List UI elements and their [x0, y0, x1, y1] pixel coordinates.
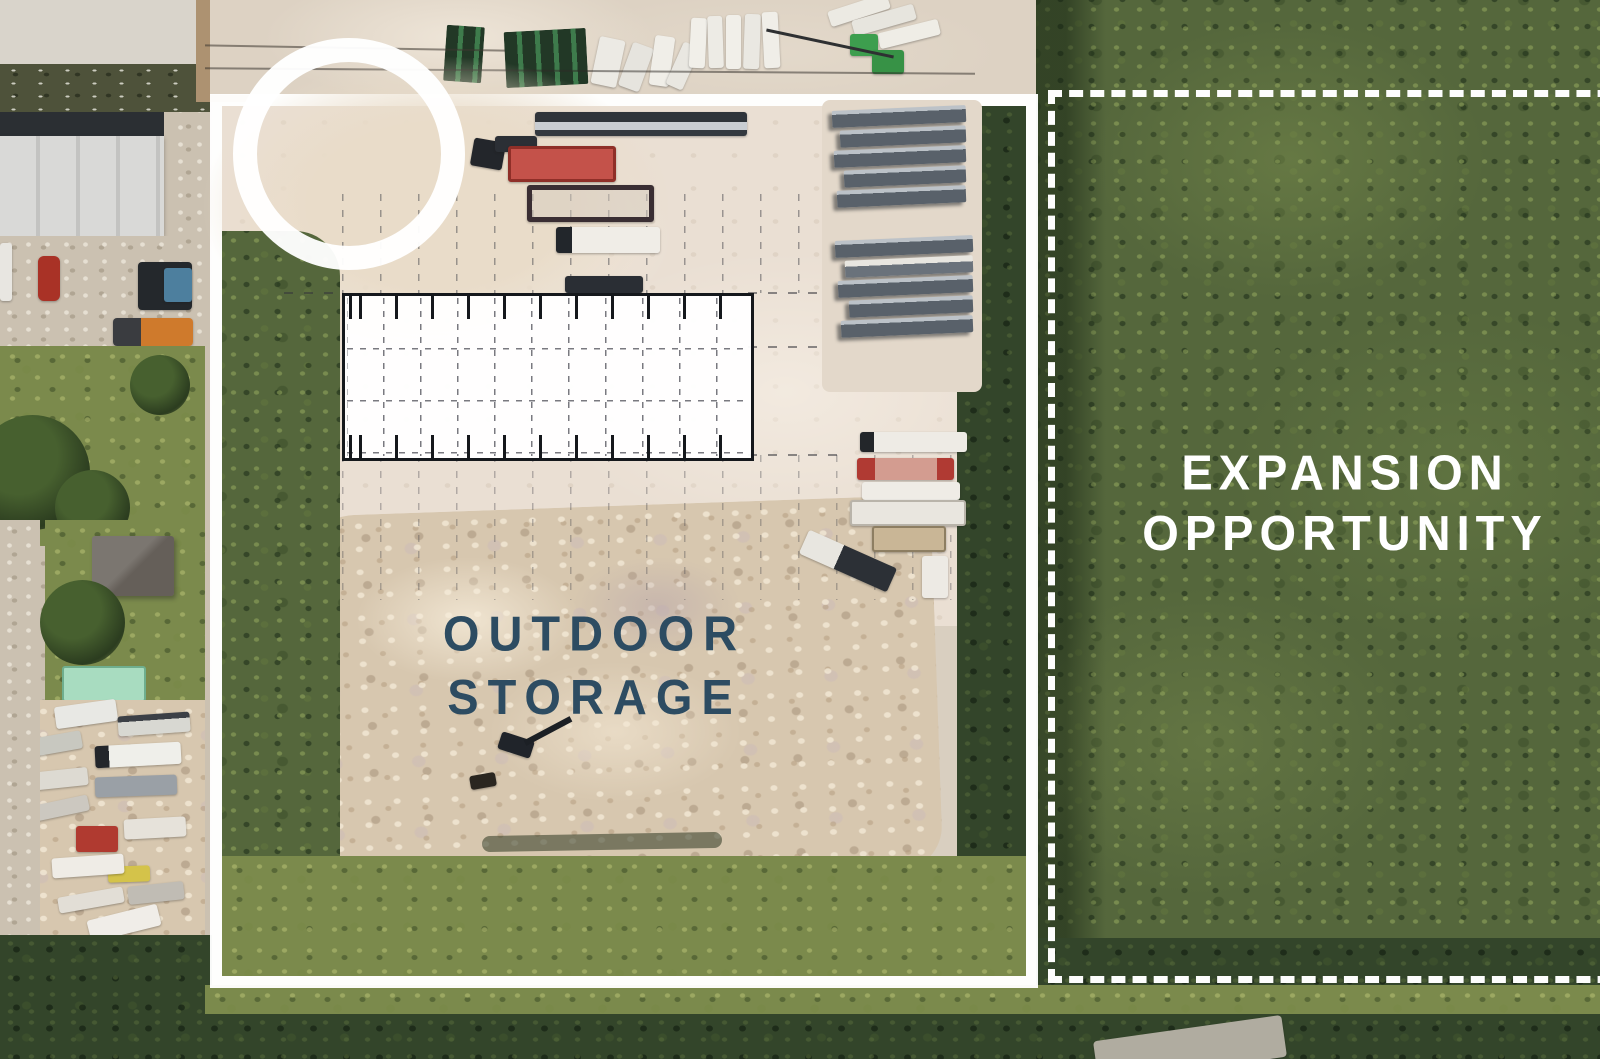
dumpster-row: [835, 235, 974, 258]
white-van: [707, 16, 724, 68]
green-buffer-bottom: [222, 856, 1026, 976]
gravel-road: [0, 520, 40, 990]
expansion-parcel-boundary: EXPANSION OPPORTUNITY: [1048, 90, 1600, 983]
expansion-opportunity-label: EXPANSION OPPORTUNITY: [1125, 443, 1565, 564]
dumpster-row: [841, 315, 974, 338]
tan-trailer: [872, 526, 946, 552]
warehouse-roof-dark-band: [0, 112, 164, 136]
brush-band: [0, 64, 210, 112]
grass-band: [205, 985, 1600, 1017]
footprint-column-ticks-top: [345, 296, 751, 319]
orange-truck: [113, 318, 193, 346]
trailer: [94, 742, 181, 768]
bottom-tree-band: [0, 1014, 1600, 1059]
flatbed-truck: [860, 432, 967, 452]
red-container: [76, 826, 118, 852]
gridline-extension: [748, 454, 848, 456]
trailer: [124, 816, 187, 839]
dumpster-row: [838, 275, 974, 298]
white-trailer: [862, 482, 960, 500]
white-van: [726, 15, 741, 69]
small-truck: [565, 276, 643, 293]
outdoor-storage-label: OUTDOOR STORAGE: [372, 602, 817, 729]
dumpster-row: [849, 295, 974, 317]
white-van: [762, 12, 781, 69]
white-vehicle: [0, 243, 12, 301]
dumpster-row: [844, 165, 967, 187]
frame-trailer: [527, 185, 654, 222]
gridline-extension: [284, 292, 342, 294]
expansion-line2: OPPORTUNITY: [1125, 503, 1565, 563]
footprint-column-ticks-bottom: [345, 435, 751, 458]
dumpster-stack: [835, 238, 973, 338]
turning-radius-circle: [233, 38, 465, 270]
white-truck: [922, 556, 948, 598]
dumpster-row: [834, 145, 967, 168]
outdoor-storage-line1: OUTDOOR: [372, 602, 817, 665]
red-tanker-truck: [857, 458, 954, 480]
dumpster-row: [837, 185, 967, 208]
footprint-grid-horizontal: [347, 298, 749, 456]
dumpster-row: [832, 105, 967, 128]
white-trailer: [850, 500, 966, 526]
red-flatbed-trailer: [508, 146, 616, 182]
trailer: [95, 775, 178, 798]
red-car: [38, 256, 60, 301]
semi-trailer: [535, 112, 747, 136]
dumpster-stack: [832, 108, 966, 208]
tree: [130, 355, 190, 415]
expansion-line1: EXPANSION: [1125, 443, 1565, 503]
outdoor-storage-line2: STORAGE: [372, 665, 817, 728]
building-footprint: [342, 293, 754, 461]
dumpster-row: [845, 255, 974, 278]
concrete-slab: [0, 0, 206, 74]
white-van: [689, 18, 708, 69]
aerial-site-plan: OUTDOOR STORAGE EXPANSION OPPORTUNITY: [0, 0, 1600, 1059]
teal-tarp: [62, 666, 146, 702]
white-trailer: [556, 227, 660, 253]
tree: [40, 580, 125, 665]
white-van: [743, 14, 761, 70]
blue-equipment-cab: [164, 268, 192, 302]
dumpster-row: [840, 125, 967, 147]
warehouse-roof: [0, 136, 164, 236]
